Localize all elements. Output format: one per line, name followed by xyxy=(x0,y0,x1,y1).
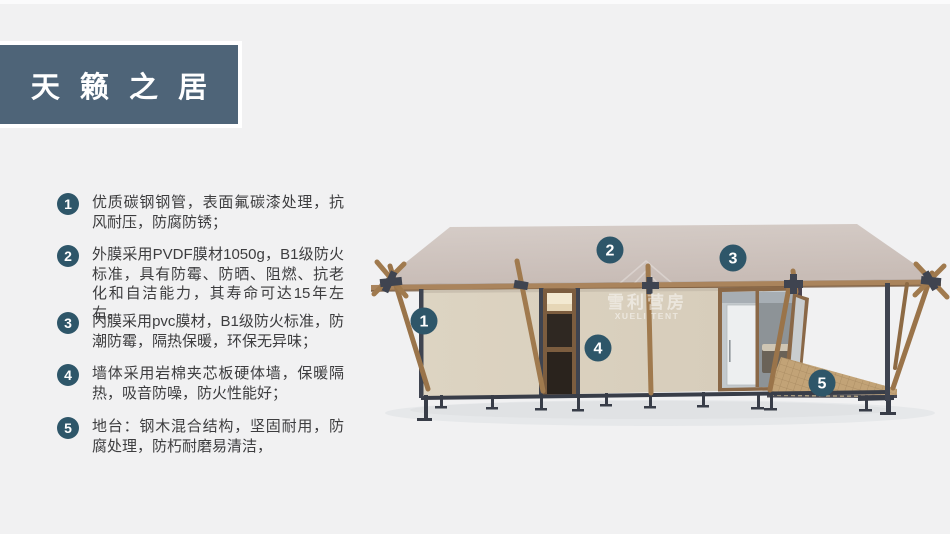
callout-2: 2 xyxy=(597,237,624,264)
ground-shadow xyxy=(385,400,935,426)
callout-number: 4 xyxy=(594,341,603,358)
callout-4: 4 xyxy=(585,335,612,362)
feature-number-badge: 4 xyxy=(57,364,79,386)
callout-5: 5 xyxy=(809,370,836,397)
feature-text: 内膜采用pvc膜材，B1级防火标准，防潮防霉，隔热保暖，环保无异味； xyxy=(92,312,344,351)
feature-text: 优质碳钢钢管，表面氟碳漆处理，抗风耐压，防腐防锈； xyxy=(92,193,344,232)
callout-number: 1 xyxy=(420,314,429,331)
title-banner: 天 籁 之 居 xyxy=(0,41,242,128)
feature-number-badge: 3 xyxy=(57,312,79,334)
slide-top-edge xyxy=(0,0,950,4)
callout-number: 2 xyxy=(606,243,615,260)
feature-item-4: 4 墙体采用岩棉夹芯板硬体墙，保暖隔热，吸音防噪，防火性能好； xyxy=(57,364,344,403)
feature-text: 墙体采用岩棉夹芯板硬体墙，保暖隔热，吸音防噪，防火性能好； xyxy=(92,364,344,403)
feature-number-badge: 5 xyxy=(57,417,79,439)
watermark-text: 雪利营房 XUELI TENT xyxy=(607,292,687,321)
callout-1: 1 xyxy=(411,308,438,335)
feature-item-5: 5 地台：钢木混合结构，坚固耐用，防腐处理，防朽耐磨易清洁， xyxy=(57,417,344,456)
entry-door xyxy=(539,288,580,398)
tent-illustration: 雪利营房 XUELI TENT 1 2 3 4 5 xyxy=(368,205,950,440)
watermark-en: XUELI TENT xyxy=(615,311,680,321)
feature-number-badge: 2 xyxy=(57,245,79,267)
tent-roof xyxy=(379,224,936,287)
page-title: 天 籁 之 居 xyxy=(25,64,213,106)
tent-render: 雪利营房 XUELI TENT 1 2 3 4 5 xyxy=(368,205,950,440)
feature-item-3: 3 内膜采用pvc膜材，B1级防火标准，防潮防霉，隔热保暖，环保无异味； xyxy=(57,312,344,351)
feature-text: 地台：钢木混合结构，坚固耐用，防腐处理，防朽耐磨易清洁， xyxy=(92,417,344,456)
callout-number: 5 xyxy=(818,376,827,393)
callout-3: 3 xyxy=(720,245,747,272)
feature-number-badge: 1 xyxy=(57,193,79,215)
feature-item-1: 1 优质碳钢钢管，表面氟碳漆处理，抗风耐压，防腐防锈； xyxy=(57,193,344,232)
watermark-cn: 雪利营房 xyxy=(607,292,687,312)
callout-number: 3 xyxy=(729,251,738,268)
